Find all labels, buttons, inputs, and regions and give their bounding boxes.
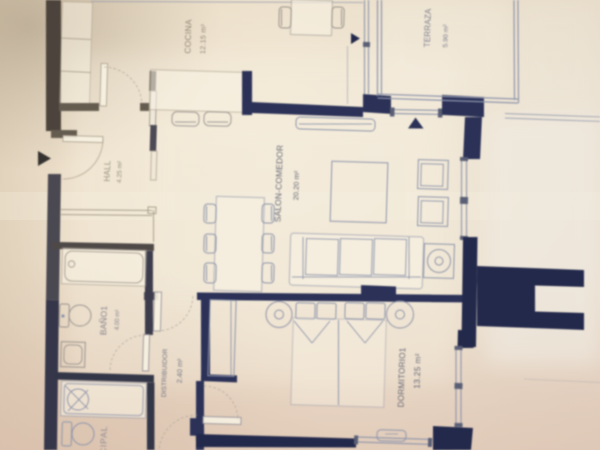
- svg-text:DORMITORIO1: DORMITORIO1: [397, 347, 408, 407]
- svg-text:COCINA: COCINA: [183, 19, 194, 54]
- svg-text:4.00 m²: 4.00 m²: [115, 310, 122, 331]
- svg-text:CIPAL: CIPAL: [98, 425, 109, 450]
- svg-text:20.20 m²: 20.20 m²: [291, 170, 301, 200]
- svg-text:4.25 m²: 4.25 m²: [116, 160, 124, 183]
- svg-text:2.40 m²: 2.40 m²: [175, 358, 185, 384]
- svg-text:HALL: HALL: [103, 160, 113, 182]
- svg-text:5.90 m²: 5.90 m²: [442, 24, 450, 48]
- svg-text:13.25 m²: 13.25 m²: [412, 353, 422, 389]
- svg-text:DISTRIBUIDOR: DISTRIBUIDOR: [161, 349, 169, 398]
- svg-text:BAÑO1: BAÑO1: [98, 305, 109, 335]
- svg-text:12.15 m²: 12.15 m²: [200, 23, 208, 54]
- svg-text:TERRAZA: TERRAZA: [423, 8, 433, 47]
